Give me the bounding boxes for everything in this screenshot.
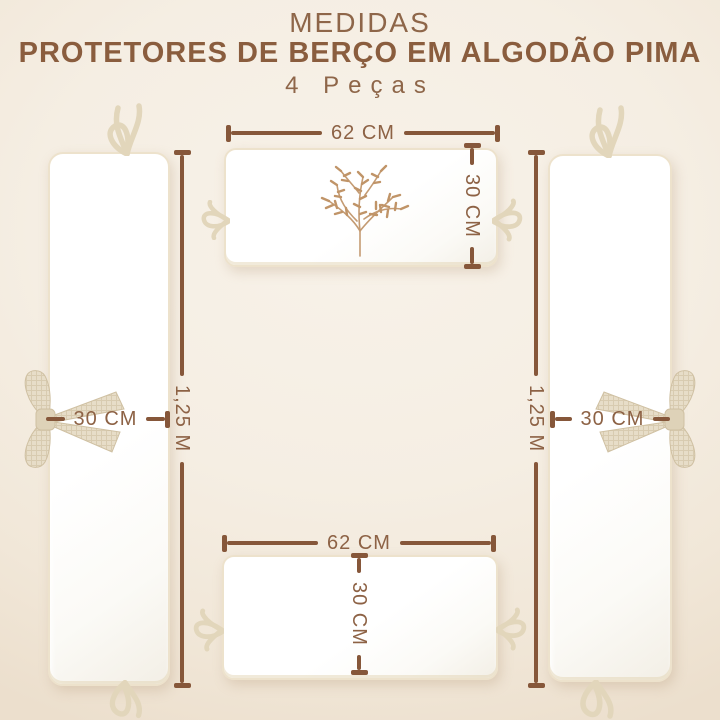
product-name: PROTETORES DE BERÇO EM ALGODÃO PIMA <box>0 37 720 70</box>
measure-line <box>231 131 322 136</box>
measure-line <box>534 462 539 683</box>
measure-line <box>146 417 165 422</box>
measure-bottom-height: 30 CM <box>350 553 368 675</box>
measure-label: 62 CM <box>318 533 400 553</box>
ribbon-tie-topPiece-left-icon <box>198 200 230 240</box>
measure-line <box>470 247 475 264</box>
measure-label: 62 CM <box>322 123 404 143</box>
measure-right-width: 30 CM <box>550 410 670 428</box>
measure-cap <box>174 683 191 688</box>
ribbon-tie-bottom-right-icon <box>566 680 626 720</box>
ribbon-tie-top-left-icon <box>96 100 158 156</box>
measure-cap <box>528 683 545 688</box>
ribbon-tie-topPiece-right-icon <box>492 198 526 242</box>
measure-line <box>534 155 539 376</box>
botanical-sprig-icon <box>291 159 429 259</box>
measure-cap <box>491 535 496 552</box>
ribbon-tie-top-right-icon <box>578 102 640 158</box>
measure-bottom-width: 62 CM <box>222 534 496 552</box>
measure-line <box>357 655 362 670</box>
measure-cap <box>351 670 368 675</box>
measure-left-length: 1,25 M <box>173 150 191 688</box>
page-title: MEDIDAS <box>0 7 720 39</box>
measure-line <box>357 558 362 573</box>
measure-line <box>180 462 185 683</box>
ribbon-tie-bottomPiece-left-icon <box>190 606 224 654</box>
measure-line <box>46 417 65 422</box>
piece-count: 4 Peças <box>0 72 720 100</box>
measure-cap <box>495 125 500 142</box>
measure-label: 30 CM <box>462 165 482 247</box>
measure-right-length: 1,25 M <box>527 150 545 688</box>
measure-top-width: 62 CM <box>226 124 500 142</box>
measure-line <box>180 155 185 376</box>
measure-cap <box>165 411 170 428</box>
measure-cap <box>464 264 481 269</box>
measure-label: 30 CM <box>65 409 147 429</box>
measure-line <box>653 417 670 422</box>
measure-left-width: 30 CM <box>46 410 170 428</box>
ribbon-tie-bottom-left-icon <box>96 680 154 720</box>
measure-label: 1,25 M <box>526 376 546 461</box>
measure-line <box>400 541 491 546</box>
product-measurement-diagram: MEDIDAS PROTETORES DE BERÇO EM ALGODÃO P… <box>0 0 720 720</box>
measure-label: 1,25 M <box>172 376 192 461</box>
measure-line <box>470 148 475 165</box>
measure-label: 30 CM <box>572 409 654 429</box>
measure-label: 30 CM <box>349 573 369 655</box>
measure-top-height: 30 CM <box>463 143 481 269</box>
measure-line <box>404 131 495 136</box>
ribbon-tie-bottomPiece-right-icon <box>496 604 530 654</box>
measure-line <box>227 541 318 546</box>
measure-line <box>555 417 572 422</box>
